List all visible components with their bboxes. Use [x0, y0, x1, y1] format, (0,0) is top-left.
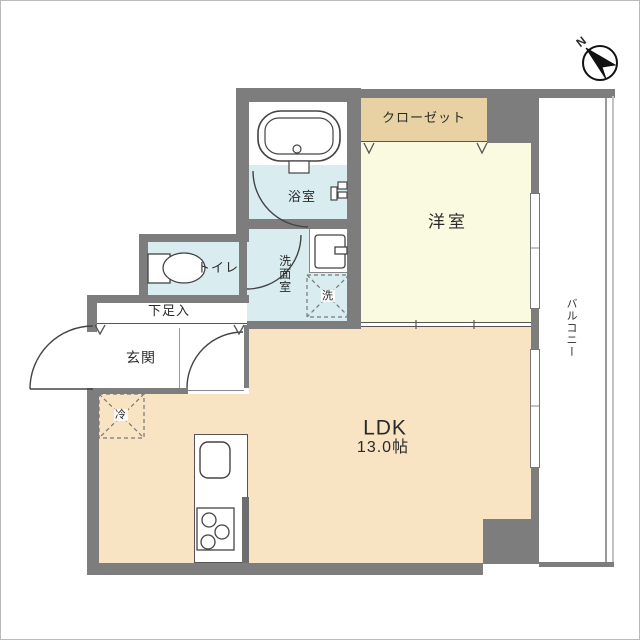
- wall-east-mid: [531, 309, 539, 349]
- balcony-railing-outer: [612, 96, 614, 566]
- wall-bath-right: [347, 88, 361, 329]
- window-western-room: [530, 193, 540, 309]
- compass-icon: [583, 46, 617, 80]
- balcony-label: バルコニー: [565, 298, 577, 358]
- window-ldk: [530, 349, 540, 468]
- wall-toilet-left: [139, 234, 148, 302]
- wall-hall-stub: [244, 325, 249, 388]
- closet-front-line: [361, 141, 487, 142]
- wall-left-lower: [87, 389, 99, 575]
- western-room-floor: [361, 142, 531, 326]
- wall-top-main: [347, 89, 615, 98]
- wall-toilet-right: [239, 234, 247, 302]
- sliding-door-western-ldk: [361, 322, 531, 327]
- ldk-label: LDK: [363, 416, 407, 439]
- entrance-step-line: [179, 328, 180, 388]
- closet-label: クローゼット: [382, 111, 466, 125]
- wall-entrance-bottom: [87, 388, 188, 394]
- bathtub-alcove: [249, 102, 347, 165]
- wall-toilet-top: [139, 234, 249, 242]
- floorplan-canvas: クローゼット 洋室 浴室 洗面室 洗 トイレ 下足入 玄関 LDK 13.0帖 …: [0, 0, 640, 640]
- bathroom-label: 浴室: [288, 190, 316, 204]
- front-door: [30, 326, 93, 389]
- entrance-label: 玄関: [126, 350, 156, 365]
- kitchen-counter: [194, 434, 248, 563]
- kitchen-partition-wall: [242, 497, 249, 563]
- entrance-hall: [97, 325, 244, 388]
- wall-closet-right-block: [487, 89, 533, 143]
- compass-north-label: N: [574, 34, 590, 50]
- wall-notch-block: [483, 519, 539, 564]
- balcony-bottom-line: [539, 562, 614, 567]
- shoe-cabinet-front-line: [97, 323, 247, 324]
- western-room-label: 洋室: [428, 214, 468, 233]
- shoe-storage-label: 下足入: [148, 304, 190, 318]
- wall-washroom-bottom: [247, 321, 361, 329]
- fridge-label: 冷: [114, 409, 128, 421]
- wall-east-upper: [531, 98, 539, 193]
- vanity-alcove: [309, 229, 349, 273]
- wall-bath-bottom: [247, 219, 359, 229]
- wall-bottom: [87, 563, 483, 575]
- wall-bath-top: [236, 88, 349, 102]
- ldk-size-label: 13.0帖: [357, 439, 409, 457]
- toilet-label: トイレ: [197, 261, 239, 275]
- ldk-door-threshold: [188, 390, 244, 391]
- wall-left-upper: [87, 295, 97, 332]
- washer-label: 洗: [321, 290, 335, 302]
- balcony-railing-inner: [605, 98, 607, 564]
- wall-shoe-top: [87, 295, 249, 303]
- washroom-label: 洗面室: [277, 255, 290, 294]
